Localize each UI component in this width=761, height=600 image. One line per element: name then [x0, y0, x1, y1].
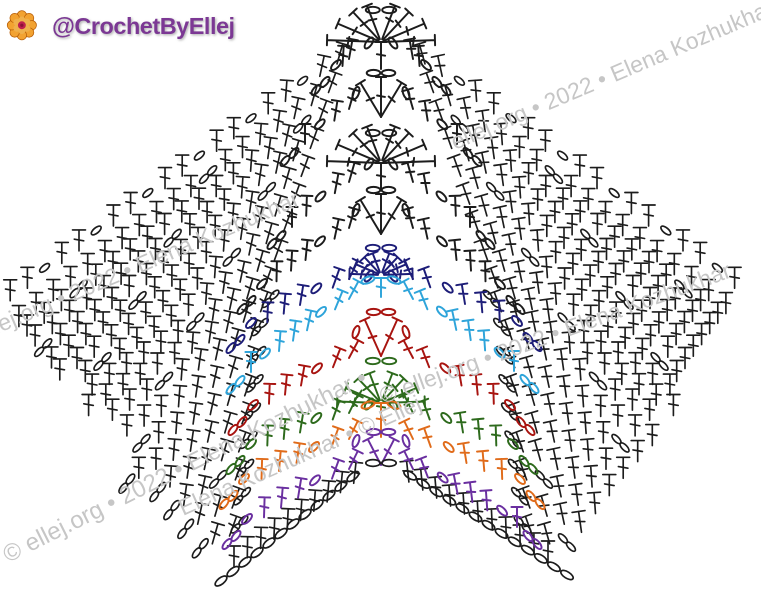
svg-text:@CrochetByEllej: @CrochetByEllej — [52, 13, 235, 39]
